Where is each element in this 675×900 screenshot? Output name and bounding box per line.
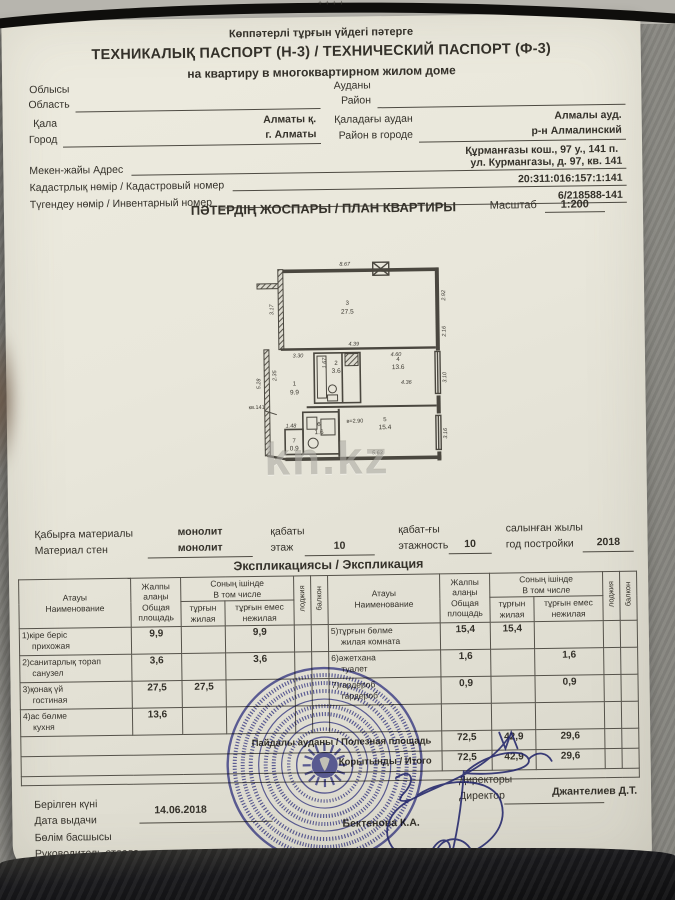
dim-label: 1.67 bbox=[322, 357, 328, 369]
director-label-kk: Директоры bbox=[459, 772, 513, 788]
city-district-label-kk: Қаладағы аудан bbox=[334, 112, 413, 128]
field-city: Қала Город Алматы қ. г. Алматы bbox=[29, 112, 321, 147]
director-label-ru: Директор bbox=[459, 788, 513, 804]
city-district-value-ru: р-н Алмалинский bbox=[423, 123, 622, 140]
issue-date-value: 14.06.2018 bbox=[154, 803, 207, 819]
ceiling-height-label: в=2.90 bbox=[346, 418, 363, 424]
floor-label-kk: қабаты bbox=[270, 524, 304, 540]
issue-date-label-ru: Дата выдачи bbox=[34, 813, 97, 830]
room-area: 27.5 bbox=[341, 309, 354, 316]
wall-material-label-kk: Қабырға материалы bbox=[34, 526, 148, 543]
floors-label-kk: қабат-ғы bbox=[398, 522, 448, 538]
col-header-including: Соның ішіндеВ том числе bbox=[181, 576, 294, 602]
wall-material-label-ru: Материал стен bbox=[35, 542, 149, 559]
year-label-ru: год постройки bbox=[506, 536, 583, 553]
wall-material-value-kk: монолит bbox=[148, 524, 253, 541]
room-number: 1 bbox=[293, 381, 297, 387]
room-number: 5 bbox=[383, 417, 387, 423]
dim-label: 3.30 bbox=[293, 353, 305, 359]
dim-label: 2.16 bbox=[442, 325, 448, 338]
kn-kz-watermark: kn.kz bbox=[7, 427, 647, 490]
col-header-name: АтауыНаименование bbox=[19, 578, 132, 628]
floor-value: 10 bbox=[305, 538, 375, 556]
dim-label: 3.10 bbox=[442, 371, 448, 383]
issue-date-label-kk: Берілген күні bbox=[34, 797, 97, 814]
room-area: 9.9 bbox=[290, 389, 300, 396]
region-label-kk: Облысы bbox=[28, 83, 69, 99]
dim-label: 2.35 bbox=[272, 369, 278, 382]
floors-label-ru: этажность bbox=[398, 538, 448, 554]
room-number: 3 bbox=[346, 301, 350, 307]
col-header-balcony: балкон bbox=[620, 571, 638, 620]
field-city-district: Қаладағы аудан Район в городе Алмалы ауд… bbox=[334, 108, 626, 143]
city-value-ru: г. Алматы bbox=[67, 127, 316, 145]
cadastral-label: Кадастрлық нөмір / Кадастровый номер bbox=[30, 179, 233, 194]
dim-label: 4.36 bbox=[401, 380, 413, 386]
district-label-ru: Район bbox=[334, 94, 371, 110]
col-header-nonliving: тұрғын емеснежилая bbox=[225, 600, 294, 625]
col-header-living: тұрғынжилая bbox=[181, 601, 225, 626]
col-header-nonliving: тұрғын емеснежилая bbox=[534, 596, 603, 621]
director-name: Джантелиев Д.Т. bbox=[552, 784, 637, 801]
address-fields: Облысы Область Ауданы Район Қала bbox=[28, 75, 627, 214]
col-header-total: Жалпы алаңыОбщая площадь bbox=[440, 573, 491, 622]
col-header-total: Жалпы алаңыОбщая площадь bbox=[131, 578, 182, 627]
col-header-living: тұрғынжилая bbox=[490, 597, 534, 622]
district-label-kk: Ауданы bbox=[334, 78, 371, 94]
dim-label: 2.92 bbox=[441, 290, 447, 302]
col-header-including: Соның ішіндеВ том числе bbox=[490, 572, 603, 598]
col-header-balcony: балкон bbox=[311, 575, 329, 624]
dim-label: 1.48 bbox=[286, 423, 298, 429]
apartment-number-label: кв.141 bbox=[249, 405, 265, 411]
field-region: Облысы Область bbox=[28, 79, 320, 114]
floors-value: 10 bbox=[448, 536, 492, 553]
region-label-ru: Область bbox=[28, 98, 69, 114]
city-label-ru: Город bbox=[29, 132, 58, 148]
wall-material-value-ru: монолит bbox=[148, 540, 253, 557]
address-label: Мекен-жайы Адрес bbox=[29, 164, 131, 177]
city-label-kk: Қала bbox=[29, 117, 58, 133]
round-blue-stamp bbox=[217, 658, 432, 873]
finger-blur bbox=[0, 326, 20, 476]
floor-label-ru: этаж bbox=[270, 540, 304, 556]
dim-label: 4.60 bbox=[391, 352, 403, 358]
binding-marks: ++++ bbox=[318, 0, 346, 7]
col-header-name: АтауыНаименование bbox=[328, 574, 441, 624]
building-info-row: Қабырға материалы Материал стен монолит … bbox=[34, 519, 633, 560]
technical-passport-page: Көппәтерлі тұрғын үйдегі пәтерге ТЕХНИКА… bbox=[1, 13, 652, 874]
dim-label: 4.39 bbox=[348, 342, 359, 348]
year-label-kk: салынған жылы bbox=[506, 520, 583, 537]
room-area: 3.6 bbox=[332, 368, 342, 375]
cadastral-value: 20:311:016:157:1:141 bbox=[232, 172, 627, 192]
dim-label: 3.17 bbox=[269, 303, 275, 315]
room-number: 2 bbox=[334, 361, 338, 367]
dim-label: 5.28 bbox=[256, 378, 262, 390]
col-header-loggia: лоджия bbox=[603, 571, 621, 620]
scale-label: Масштаб bbox=[490, 199, 537, 212]
field-district: Ауданы Район bbox=[334, 75, 626, 110]
room-area: 13.6 bbox=[392, 364, 405, 371]
background-table-surface bbox=[0, 848, 675, 900]
city-district-label-ru: Район в городе bbox=[334, 127, 413, 143]
scale-value: 1:200 bbox=[545, 198, 605, 213]
year-value: 2018 bbox=[583, 534, 634, 551]
dept-head-label-kk: Бөлім басшысы bbox=[35, 830, 139, 847]
dim-label: 8.67 bbox=[339, 262, 351, 268]
photo-of-document: ++++ Көппәтерлі тұрғын үйдегі пәтерге ТЕ… bbox=[0, 0, 675, 900]
col-header-loggia: лоджия bbox=[294, 576, 312, 625]
scale-field: Масштаб1:200 bbox=[490, 198, 605, 212]
